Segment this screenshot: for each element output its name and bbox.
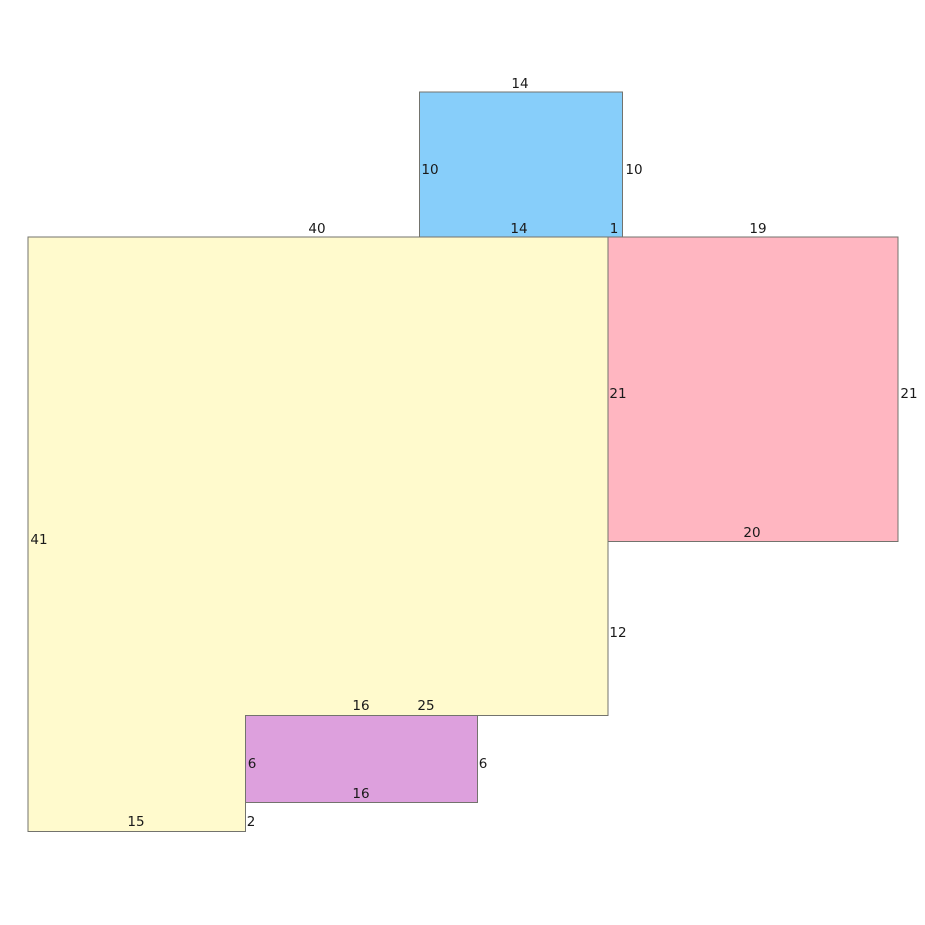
- edge-label-pink-bottom: 20: [743, 525, 760, 541]
- edge-label-pink-left: 21: [609, 386, 626, 402]
- edge-label-blue-right: 10: [625, 162, 642, 178]
- edge-label-purple-left: 6: [248, 756, 257, 772]
- edge-label-purple-top: 16: [352, 698, 369, 714]
- edge-label-pink-top: 19: [749, 221, 766, 237]
- edge-label-blue-bottom: 14: [510, 221, 527, 237]
- edge-label-yellow-left: 41: [30, 532, 47, 548]
- edge-label-blue-left: 10: [421, 162, 438, 178]
- edge-label-yellow-bottom-left: 15: [127, 814, 144, 830]
- diagram-canvas: 1410104014119212120411216256616152: [0, 0, 925, 925]
- edge-label-purple-bottom: 16: [352, 786, 369, 802]
- edge-label-pink-right: 21: [900, 386, 917, 402]
- edge-label-yellow-notch-below-purple: 2: [247, 814, 256, 830]
- edge-label-purple-right: 6: [479, 756, 488, 772]
- packing-diagram: 1410104014119212120411216256616152: [0, 0, 925, 925]
- edge-label-yellow-right-lower: 12: [609, 625, 626, 641]
- edge-label-yellow-top: 40: [308, 221, 325, 237]
- edge-label-blue-top: 14: [511, 76, 528, 92]
- edge-label-yellow-bottom-right-segment: 25: [417, 698, 434, 714]
- edge-label-blue-pink-overlap: 1: [610, 221, 619, 237]
- pink-rectangle: [608, 237, 898, 542]
- blue-rectangle: [420, 92, 623, 237]
